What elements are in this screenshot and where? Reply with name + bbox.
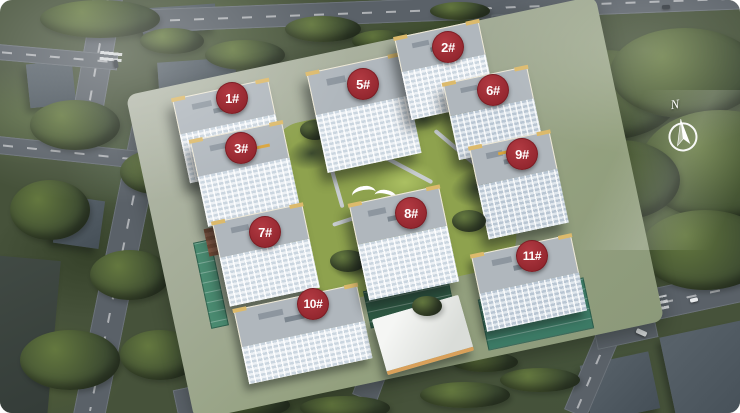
tree-clump bbox=[285, 16, 361, 42]
city-block bbox=[659, 320, 740, 413]
tree-clump bbox=[40, 0, 160, 38]
compass: N bbox=[656, 96, 707, 163]
tree-clump bbox=[140, 28, 204, 54]
badge-building-6: 6# bbox=[477, 74, 509, 106]
badge-building-3: 3# bbox=[225, 132, 257, 164]
aerial-site-plan: 1# 2# 3# 5# 6# 7# 8# 9# 10# 11# N bbox=[0, 0, 740, 413]
tree-clump bbox=[452, 210, 486, 232]
vehicle bbox=[662, 5, 670, 9]
badge-building-10: 10# bbox=[297, 288, 329, 320]
badge-building-11: 11# bbox=[516, 240, 548, 272]
compass-dial-icon bbox=[660, 108, 705, 157]
badge-building-9: 9# bbox=[506, 138, 538, 170]
tree-clump bbox=[430, 2, 490, 20]
crosswalk bbox=[99, 49, 122, 62]
tree-clump bbox=[500, 368, 580, 392]
tree-clump bbox=[30, 100, 120, 150]
badge-building-1: 1# bbox=[216, 82, 248, 114]
badge-building-5: 5# bbox=[347, 68, 379, 100]
tree-clump bbox=[300, 396, 390, 413]
tree-clump bbox=[420, 382, 510, 408]
tree-clump bbox=[90, 250, 170, 300]
badge-building-8: 8# bbox=[395, 197, 427, 229]
badge-building-2: 2# bbox=[432, 31, 464, 63]
tree-clump bbox=[20, 330, 120, 390]
tree-clump bbox=[10, 180, 90, 240]
tree-clump bbox=[412, 296, 442, 316]
badge-building-7: 7# bbox=[249, 216, 281, 248]
